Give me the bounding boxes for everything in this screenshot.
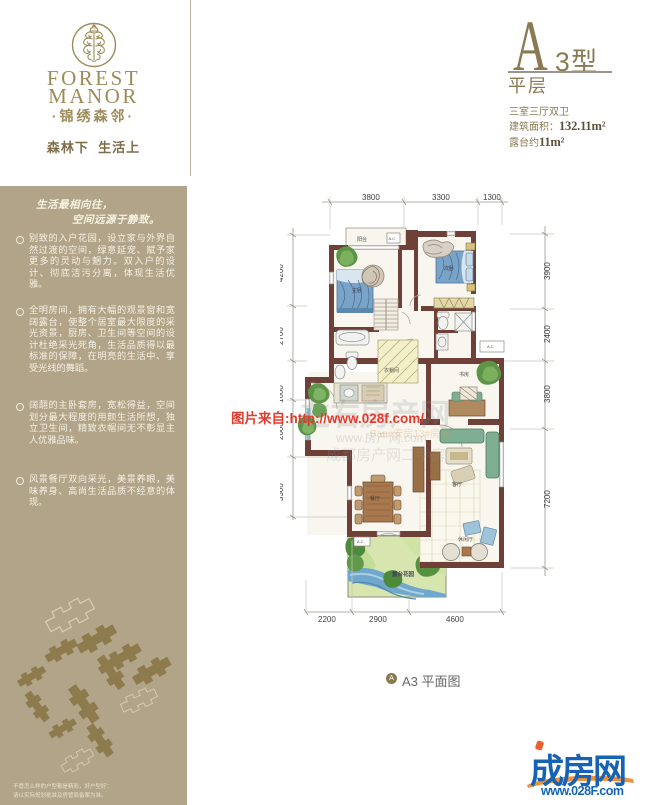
- svg-text:阳台: 阳台: [357, 236, 367, 243]
- svg-text:A.C: A.C: [357, 539, 364, 544]
- svg-text:餐厅: 餐厅: [370, 495, 380, 502]
- svg-text:2900: 2900: [369, 615, 387, 624]
- svg-text:A.C: A.C: [389, 236, 396, 241]
- svg-text:3800: 3800: [362, 193, 380, 202]
- svg-text:露台花园: 露台花园: [392, 570, 415, 578]
- svg-text:主卧: 主卧: [352, 287, 362, 294]
- svg-text:1300: 1300: [483, 193, 501, 202]
- svg-text:2200: 2200: [318, 615, 336, 624]
- svg-text:A.C: A.C: [487, 344, 494, 349]
- svg-text:3300: 3300: [432, 193, 450, 202]
- svg-text:3900: 3900: [543, 262, 552, 280]
- svg-text:成都房产网二手房: 成都房产网二手房: [326, 447, 446, 464]
- svg-text:书房: 书房: [459, 371, 469, 378]
- svg-text:3300: 3300: [280, 483, 285, 501]
- svg-text:客厅: 客厅: [452, 481, 462, 488]
- svg-text:7200: 7200: [543, 490, 552, 508]
- svg-text:Bann安房13#房源: Bann安房13#房源: [370, 427, 450, 440]
- svg-text:衣帽间: 衣帽间: [384, 367, 399, 374]
- svg-text:2400: 2400: [543, 325, 552, 343]
- svg-text:4600: 4600: [446, 615, 464, 624]
- svg-text:2700: 2700: [280, 327, 285, 345]
- svg-text:休闲厅: 休闲厅: [458, 536, 473, 543]
- svg-text:4200: 4200: [280, 264, 285, 282]
- svg-text:次卧: 次卧: [444, 265, 454, 272]
- svg-text:1600: 1600: [280, 385, 285, 403]
- svg-text:3800: 3800: [543, 385, 552, 403]
